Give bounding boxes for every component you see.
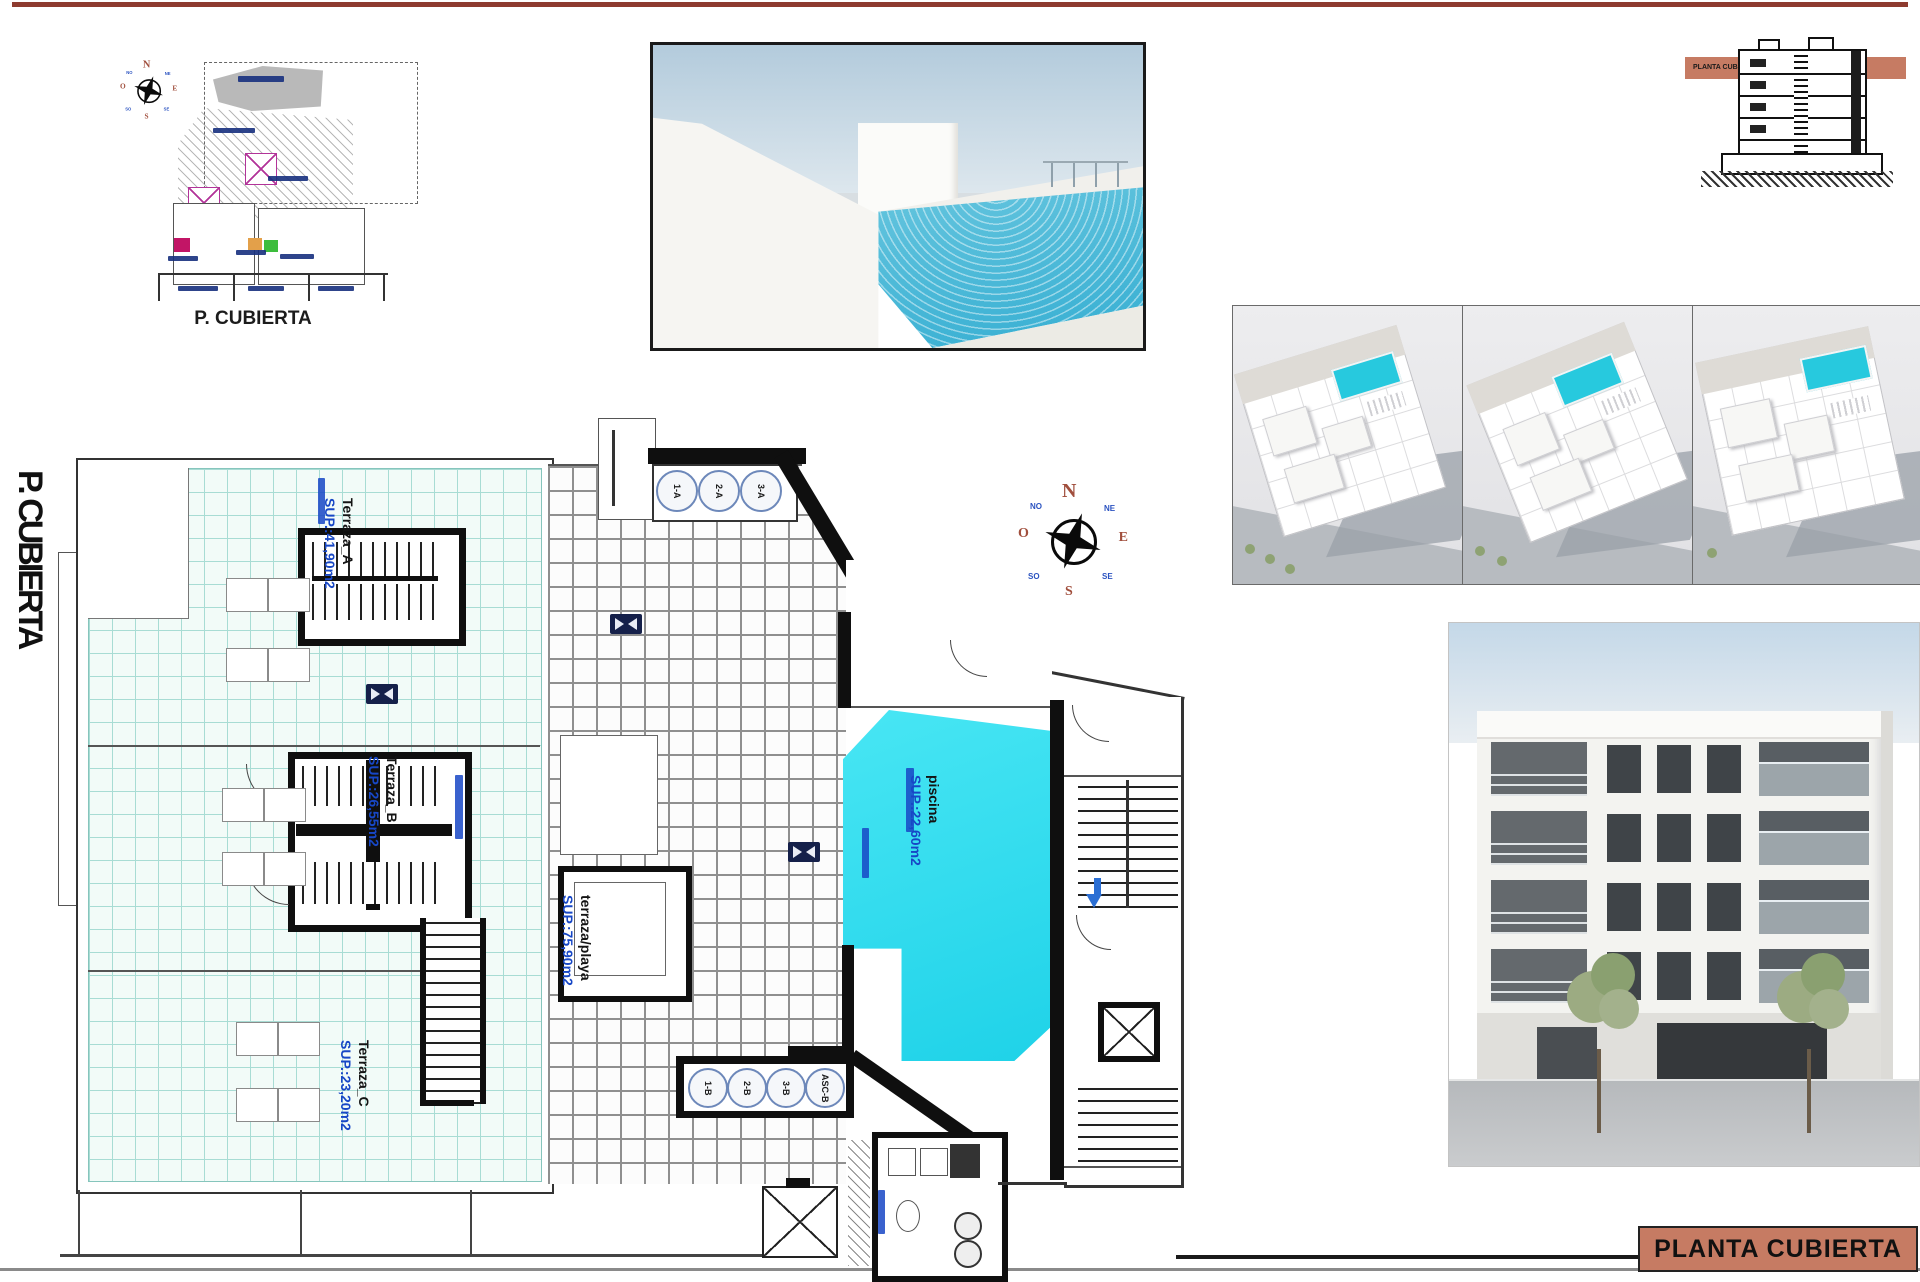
compass-se: SE: [1102, 572, 1113, 581]
stair-rail: [1126, 780, 1129, 908]
beach-terrace-label: terraza/playa SUP.:75,90m2: [560, 895, 594, 1085]
site-text-bar: [268, 176, 308, 181]
plan-text-bar: [455, 775, 463, 839]
photo-railing-post: [1051, 163, 1053, 187]
facade-floor: [1477, 737, 1881, 799]
tree-trunk: [1807, 1049, 1811, 1133]
skylight-label: ASC-B: [820, 1074, 830, 1103]
site-compass-rose-icon: N S E O NO NE SO SE: [120, 62, 177, 119]
sun-lounger: [278, 1088, 320, 1122]
aerial-render-1: [1232, 305, 1463, 585]
window: [1657, 814, 1691, 862]
balcony-railing: [1491, 904, 1587, 934]
stair-to-playa: [420, 918, 486, 1104]
terrace-divider: [88, 745, 540, 747]
section-right-wall: [1851, 51, 1861, 157]
stair-cap-wall: [420, 1100, 474, 1106]
rooflight-rect: [560, 735, 658, 855]
photo-railing-post: [1117, 163, 1119, 187]
section-stair-core: [1794, 55, 1808, 153]
skylight-circle-2a: 2-A: [698, 470, 740, 512]
title-block-label: PLANTA CUBIERTA: [1654, 1235, 1902, 1264]
side-title: P. CUBIERTA: [10, 470, 49, 770]
site-text-bar: [248, 286, 284, 291]
title-block: PLANTA CUBIERTA: [1638, 1226, 1918, 1272]
window: [1707, 952, 1741, 1000]
sun-lounger: [264, 852, 306, 886]
street-tree: [1559, 953, 1639, 1133]
terrace-c-label: Terraza_C SUP.:23,20m2: [338, 1040, 372, 1200]
window: [1657, 745, 1691, 793]
sun-lounger: [236, 1088, 278, 1122]
skylight-circle-1b: 1-B: [688, 1068, 728, 1108]
window: [1607, 745, 1641, 793]
skylight-label: 2-B: [742, 1081, 752, 1096]
sun-lounger: [268, 648, 310, 682]
skylight-circle-3a: 3-A: [740, 470, 782, 512]
aerial-rooftop: [1695, 326, 1905, 536]
window: [1707, 883, 1741, 931]
compass-sw: SO: [1028, 572, 1040, 581]
compass-west: O: [1018, 526, 1029, 542]
top-rule: [12, 2, 1908, 7]
sun-lounger: [222, 852, 264, 886]
section-drawing: PLANTA CUBIERTA: [1683, 35, 1908, 190]
section-building: [1738, 49, 1867, 159]
aerial-render-3: [1692, 305, 1920, 585]
diagonal-wall: [848, 1050, 975, 1145]
sun-lounger: [222, 788, 264, 822]
aerial-tree-icon: [1245, 544, 1255, 554]
sun-lounger: [264, 788, 306, 822]
toilet-fixture: [896, 1200, 920, 1232]
skylight-circle-3b: 3-B: [766, 1068, 806, 1108]
tree-foliage: [1599, 989, 1639, 1029]
terrace-area: SUP.:26,55m2: [366, 756, 382, 946]
utility-fixture: [888, 1148, 916, 1176]
balcony-railing: [1491, 835, 1587, 865]
terrace-top-notch: [88, 468, 189, 619]
photo-railing-post: [1073, 163, 1075, 187]
aerial-tree-icon: [1497, 556, 1507, 566]
pool-wall: [838, 612, 851, 708]
plan-text-bar: [878, 1190, 885, 1234]
facade-photo: [1448, 622, 1920, 1167]
sun-lounger: [236, 1022, 278, 1056]
room-area: SUP.:75,90m2: [560, 895, 576, 1085]
terrace-area: SUP.:23,20m2: [338, 1040, 354, 1200]
corridor-wall: [1064, 775, 1181, 777]
skylight-label: 3-A: [756, 484, 766, 499]
aerial-tree-icon: [1285, 564, 1295, 574]
corridor-wall: [1064, 1166, 1181, 1168]
site-text-bar: [168, 256, 198, 261]
skylight-circle-asc: ASC-B: [805, 1068, 845, 1108]
plan-bottom-line: [60, 1254, 762, 1257]
plan-bottom-edge: [998, 1182, 1067, 1185]
facade-parapet: [1477, 711, 1881, 739]
tree-trunk: [1597, 1049, 1601, 1133]
balcony-opening: [1759, 880, 1869, 934]
pool-photo: [650, 42, 1146, 351]
room-name: piscina: [926, 775, 942, 935]
detail-marker-icon: [788, 842, 820, 862]
site-text-bar: [178, 286, 218, 291]
compass-west: O: [120, 83, 126, 91]
sun-lounger: [226, 648, 268, 682]
site-color-patch-orange: [248, 238, 262, 250]
window: [1657, 883, 1691, 931]
compass-north: N: [143, 59, 151, 71]
compass-needle-icon: [130, 72, 168, 110]
window: [1707, 814, 1741, 862]
site-plan: N S E O NO NE SO SE P. CUBIERTA: [118, 48, 423, 340]
compass-ne: NE: [1104, 504, 1115, 513]
photo-railing-post: [1095, 163, 1097, 187]
patio-stub-wall: [786, 1178, 810, 1188]
compass-nw: NO: [1030, 502, 1042, 511]
detail-marker-icon: [610, 614, 642, 634]
aerial-tree-icon: [1475, 546, 1485, 556]
compass-se: SE: [164, 107, 170, 112]
terrace-area: SUP.:41,90m2: [322, 498, 338, 668]
glass-railing: [1759, 831, 1869, 865]
section-window: [1750, 59, 1766, 67]
site-text-bar: [238, 76, 284, 82]
street-tree: [1769, 953, 1849, 1133]
skylight-circle-2b: 2-B: [727, 1068, 767, 1108]
terrace-name: Terraza_A: [340, 498, 356, 668]
compass-north: N: [1062, 480, 1076, 503]
glass-railing: [1759, 762, 1869, 796]
skylight-label: 1-A: [672, 484, 682, 499]
sun-lounger: [226, 578, 268, 612]
room-area: SUP.:22,60m2: [908, 775, 924, 935]
site-bay-tick: [383, 273, 385, 301]
terrace-name: Terraza_B: [384, 756, 400, 946]
terrace-divider: [88, 970, 460, 972]
utility-fixture: [920, 1148, 948, 1176]
terrace-name: Terraza_C: [356, 1040, 372, 1200]
balcony-opening: [1491, 742, 1587, 796]
pool-wall: [1050, 1080, 1064, 1180]
facade-side-sliver: [1881, 711, 1893, 1079]
sink-fixture: [954, 1240, 982, 1268]
drawing-sheet: { "sheet": { "side_title": "P. CUBIERTA"…: [0, 0, 1920, 1280]
balcony-opening: [1759, 811, 1869, 865]
title-block-line: [1176, 1255, 1638, 1259]
pool-coping: [846, 706, 1052, 708]
site-bay-tick: [158, 273, 160, 301]
down-arrow-icon: [1086, 894, 1102, 908]
skylight-label: 1-B: [703, 1081, 713, 1096]
pool-wall: [842, 945, 854, 1057]
detail-marker-icon: [366, 684, 398, 704]
section-window: [1750, 81, 1766, 89]
compass-east: E: [172, 85, 177, 93]
elevator-shaft-cross: [1104, 1008, 1154, 1056]
pool-label: piscina SUP.:22,60m2: [908, 775, 942, 935]
site-text-bar: [213, 128, 255, 133]
compass-ne: NE: [165, 71, 171, 76]
site-color-patch-crimson: [174, 238, 190, 252]
compass-south: S: [144, 113, 148, 121]
tree-foliage: [1809, 989, 1849, 1029]
compass-sw: SO: [125, 107, 131, 112]
terrace-b-label: Terraza_B SUP.:26,55m2: [366, 756, 400, 946]
glass-railing: [1759, 900, 1869, 934]
compass-nw: NO: [126, 70, 132, 75]
sink-fixture: [954, 1212, 982, 1240]
site-text-bar: [318, 286, 354, 291]
compass-needle-icon: [1036, 504, 1109, 577]
site-base-line: [158, 273, 388, 275]
aerial-render-2: [1462, 305, 1693, 585]
window: [1707, 745, 1741, 793]
section-window: [1750, 125, 1766, 133]
hatch-strip: [848, 1140, 870, 1266]
sun-lounger: [268, 578, 310, 612]
site-plan-caption: P. CUBIERTA: [118, 308, 388, 330]
site-bay-tick: [308, 273, 310, 301]
patio-crossed-box: [762, 1186, 838, 1258]
site-color-patch-green: [264, 240, 278, 252]
section-window: [1750, 103, 1766, 111]
window: [1607, 814, 1641, 862]
vestibule-text-bar: [612, 430, 615, 506]
site-text-bar: [236, 250, 266, 255]
plan-tick: [470, 1190, 472, 1254]
terrace-a-label: Terraza_A SUP.:41,90m2: [322, 498, 356, 668]
utility-fixture-dark: [950, 1144, 980, 1178]
skylight-label: 3-B: [781, 1081, 791, 1096]
plan-tick: [78, 1190, 80, 1254]
balcony-opening: [1491, 880, 1587, 934]
site-bay-tick: [233, 273, 235, 301]
section-ground-hatch: [1701, 171, 1893, 187]
skylight-circle-1a: 1-A: [656, 470, 698, 512]
compass-rose-icon: N S E O NO NE SO SE: [1018, 486, 1128, 596]
balcony-railing: [1491, 766, 1587, 796]
facade-floor: [1477, 806, 1881, 868]
aerial-tree-icon: [1707, 548, 1717, 558]
photo-railing: [1043, 161, 1128, 163]
site-text-bar: [280, 254, 314, 259]
compass-east: E: [1119, 530, 1128, 546]
skylight-label: 2-A: [714, 484, 724, 499]
balcony-opening: [1759, 742, 1869, 796]
aerial-tree-icon: [1265, 554, 1275, 564]
room-name: terraza/playa: [578, 895, 594, 1085]
compass-south: S: [1065, 584, 1073, 600]
plan-tick: [300, 1190, 302, 1254]
vestibule-room: [598, 418, 656, 520]
stair-flight: [1078, 1078, 1178, 1162]
window: [1657, 952, 1691, 1000]
down-arrow-icon: [1094, 878, 1101, 894]
balcony-opening: [1491, 811, 1587, 865]
facade-floor: [1477, 875, 1881, 937]
plan-text-bar: [862, 828, 869, 878]
sun-lounger: [278, 1022, 320, 1056]
pool-wall: [1050, 700, 1064, 1080]
window: [1607, 883, 1641, 931]
